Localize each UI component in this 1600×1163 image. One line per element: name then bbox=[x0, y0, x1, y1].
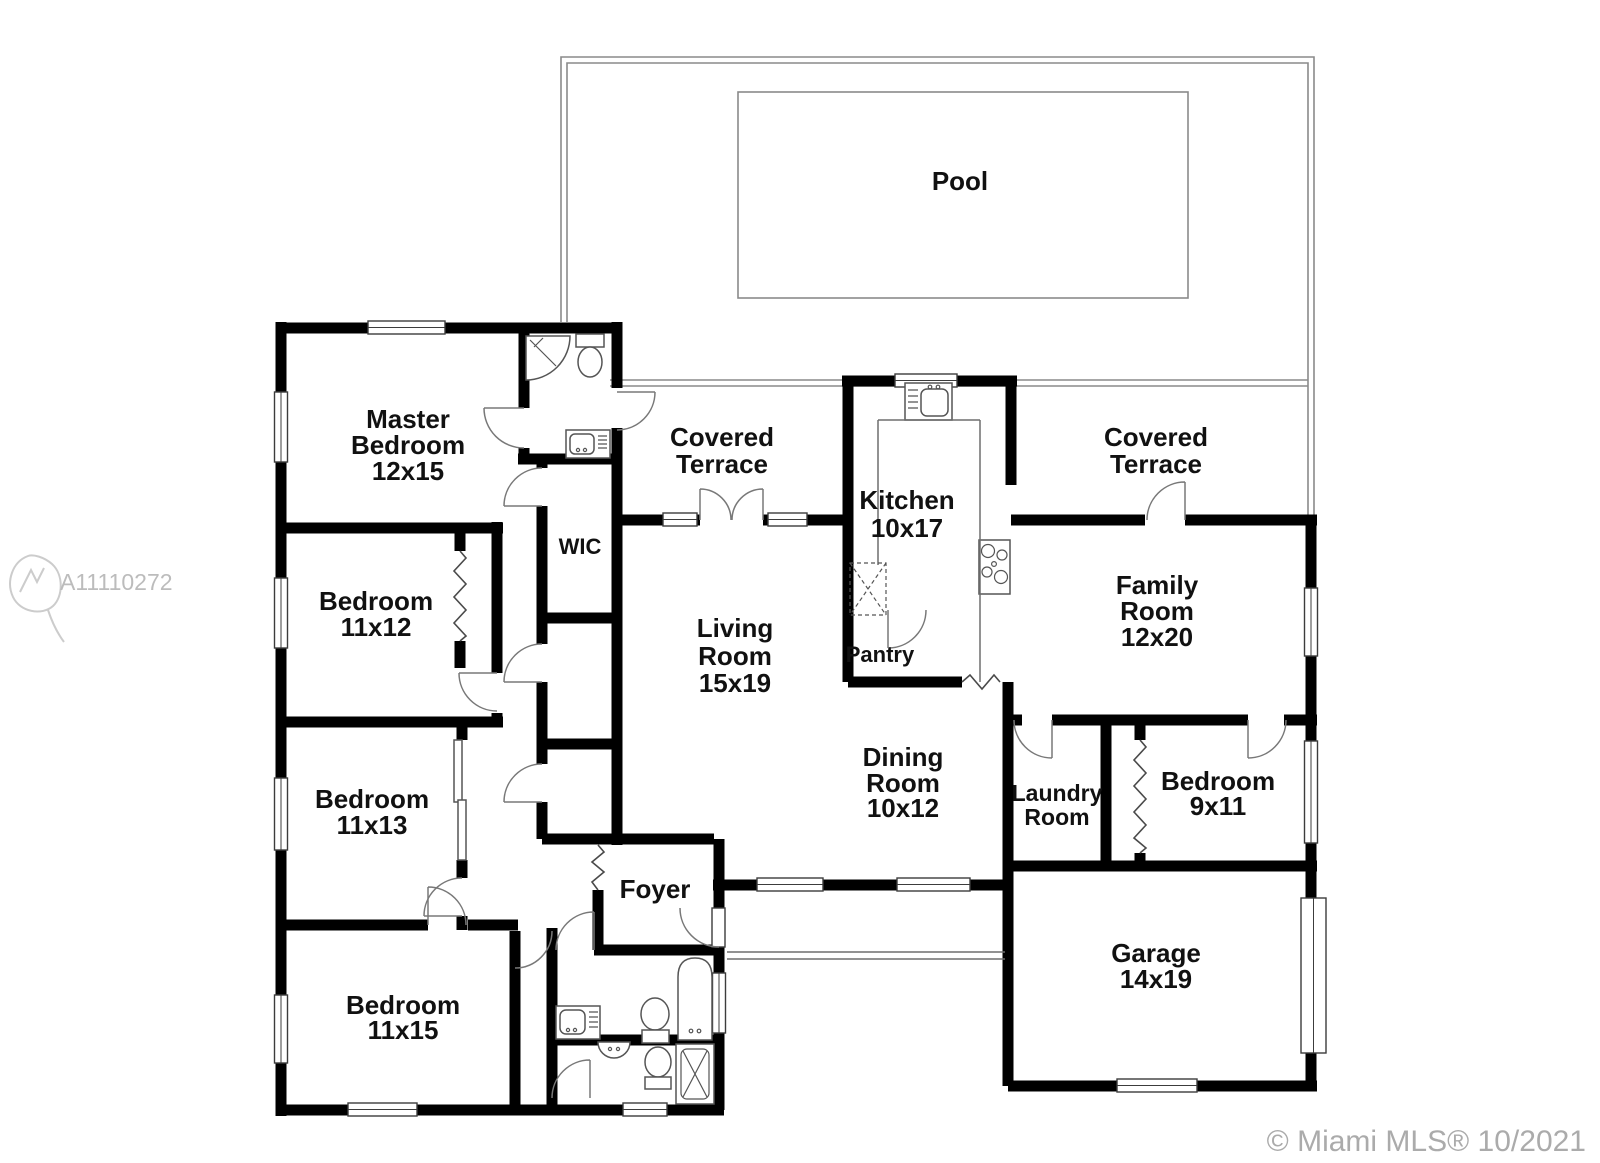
window bbox=[275, 392, 288, 462]
shower-icon bbox=[676, 1044, 714, 1104]
french-door-arc bbox=[700, 489, 763, 520]
room-label-pantry: Pantry bbox=[846, 642, 915, 667]
door-arc bbox=[515, 931, 552, 968]
room-label-foyer: Foyer bbox=[620, 874, 691, 904]
door-arc bbox=[504, 764, 542, 802]
room-label-bedroom-11x15: 11x15 bbox=[368, 1015, 439, 1045]
sink-icon bbox=[556, 1006, 600, 1039]
door-arc bbox=[1147, 482, 1185, 520]
door-arc bbox=[484, 408, 524, 448]
mls-watermark: A11110272 bbox=[10, 555, 172, 642]
window bbox=[757, 878, 823, 891]
floor-plan-page: Pool Master Bedroom 12x15 Covered Terrac… bbox=[0, 0, 1600, 1163]
corner-shower-icon bbox=[526, 336, 570, 380]
door-arc bbox=[552, 1060, 590, 1098]
window bbox=[897, 878, 970, 891]
room-label-living-room: Living bbox=[697, 613, 774, 643]
opening-zigzag bbox=[962, 675, 1000, 689]
window bbox=[275, 778, 288, 850]
toilet-icon bbox=[576, 334, 604, 377]
closet-door-zigzag bbox=[1134, 740, 1146, 853]
toilet-icon bbox=[641, 998, 669, 1043]
room-label-covered-terrace-right: Terrace bbox=[1110, 449, 1202, 479]
door-arc bbox=[459, 673, 497, 711]
window bbox=[368, 321, 445, 334]
front-porch-lines bbox=[727, 952, 1005, 959]
room-label-covered-terrace-left: Covered bbox=[670, 422, 774, 452]
room-label-covered-terrace-left: Terrace bbox=[676, 449, 768, 479]
front-door-leaf bbox=[712, 908, 725, 947]
closet-door-zigzag bbox=[454, 551, 466, 641]
room-label-laundry-room: Room bbox=[1024, 804, 1089, 830]
room-label-bedroom-9x11: 9x11 bbox=[1190, 791, 1246, 821]
door-arc bbox=[504, 644, 542, 682]
room-label-master-bedroom: 12x15 bbox=[372, 456, 444, 486]
room-label-living-room: Room bbox=[698, 641, 772, 671]
room-label-covered-terrace-right: Covered bbox=[1104, 422, 1208, 452]
window bbox=[663, 513, 697, 526]
room-label-living-room: 15x19 bbox=[699, 668, 771, 698]
toilet-icon bbox=[645, 1047, 671, 1089]
sliding-closet-doors bbox=[454, 740, 466, 860]
mls-logo-icon bbox=[10, 555, 64, 642]
window bbox=[713, 973, 726, 1033]
sink-icon bbox=[598, 1042, 630, 1058]
window bbox=[1305, 588, 1318, 656]
closet-door-zigzag bbox=[592, 845, 604, 890]
floor-plan: Pool Master Bedroom 12x15 Covered Terrac… bbox=[0, 0, 1600, 1163]
room-label-family-room: 12x20 bbox=[1121, 622, 1193, 652]
door-arc bbox=[556, 912, 594, 950]
window bbox=[1305, 741, 1318, 843]
room-label-kitchen: Kitchen bbox=[859, 485, 954, 515]
door-arc bbox=[504, 468, 542, 506]
room-label-wic: WIC bbox=[559, 534, 602, 559]
copyright-text: © Miami MLS® 10/2021 bbox=[1267, 1125, 1586, 1158]
pantry-shelf-icon bbox=[850, 563, 886, 615]
room-label-bedroom-11x13: 11x13 bbox=[337, 810, 408, 840]
window bbox=[623, 1103, 667, 1116]
sink-icon bbox=[566, 430, 610, 458]
window bbox=[1117, 1079, 1197, 1092]
room-label-kitchen: 10x17 bbox=[871, 513, 943, 543]
kitchen-sink-icon bbox=[905, 383, 952, 420]
stove-icon bbox=[979, 540, 1010, 594]
room-label-bedroom-11x12: 11x12 bbox=[341, 612, 412, 642]
window bbox=[275, 578, 288, 648]
window bbox=[348, 1103, 417, 1116]
window bbox=[768, 513, 807, 526]
door-arc bbox=[424, 878, 462, 916]
room-label-laundry-room: Laundry bbox=[1012, 780, 1103, 806]
room-label-pool: Pool bbox=[932, 166, 988, 196]
door-arc bbox=[617, 392, 655, 430]
window bbox=[275, 995, 288, 1063]
door-arc bbox=[1014, 720, 1052, 758]
room-label-garage: 14x19 bbox=[1120, 964, 1192, 994]
bathtub-icon bbox=[678, 958, 712, 1040]
door-arc bbox=[1248, 720, 1286, 758]
mls-watermark-id: A11110272 bbox=[60, 569, 173, 595]
garage-door bbox=[1301, 898, 1326, 1053]
room-label-dining-room: 10x12 bbox=[867, 793, 939, 823]
